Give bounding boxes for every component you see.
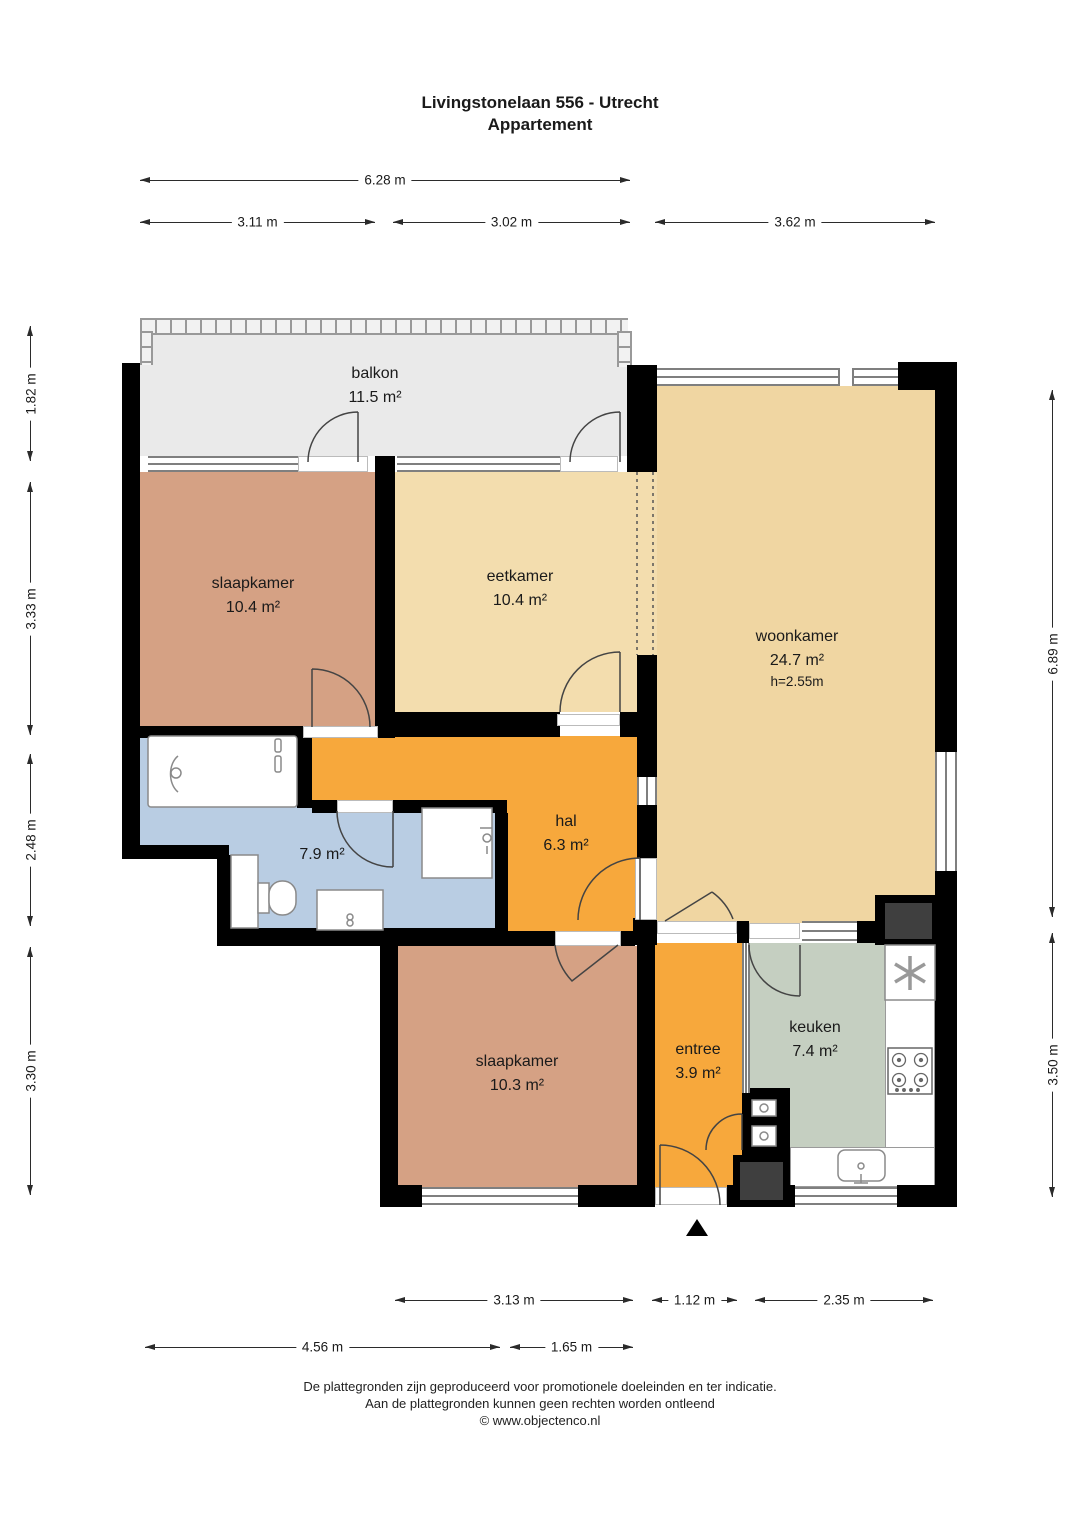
dim-top-total: 6.28 m: [140, 180, 630, 181]
door-sill-keuken: [749, 923, 800, 939]
dim-bottom-5: 1.65 m: [510, 1347, 633, 1348]
window-keuken-bottom: [795, 1187, 897, 1205]
room-label-eetkamer: eetkamer 10.4 m²: [487, 565, 554, 613]
window-slaapkamer2-bottom: [422, 1187, 578, 1205]
wall: [627, 365, 657, 472]
room-badkamer-tubzone: [140, 736, 297, 808]
room-height: h=2.55m: [756, 673, 839, 691]
door-sill-entree-woonkamer: [657, 921, 737, 934]
dim-label: 2.48 m: [24, 813, 39, 866]
room-area: 7.4 m²: [789, 1040, 841, 1064]
wall: [393, 800, 507, 813]
room-label-slaapkamer-1: slaapkamer 10.4 m²: [212, 572, 295, 620]
wall: [380, 943, 398, 1207]
wall: [122, 363, 140, 858]
footer-line-2: Aan de plattegronden kunnen geen rechten…: [0, 1395, 1080, 1412]
door-sill-eetkamer: [557, 714, 620, 726]
room-label-balkon: balkon 11.5 m²: [348, 362, 401, 410]
window-mullion: [838, 368, 854, 386]
door-sill-hal-woonkamer: [635, 858, 657, 920]
balcony-railing-left: [140, 331, 153, 365]
dim-label: 4.56 m: [296, 1340, 349, 1355]
dim-left-3: 2.48 m: [30, 754, 31, 926]
room-area: 10.4 m²: [487, 589, 554, 613]
dim-label: 3.50 m: [1046, 1038, 1061, 1091]
dim-label: 3.02 m: [485, 215, 538, 230]
room-name: slaapkamer: [476, 1050, 559, 1074]
dim-right-2: 3.50 m: [1052, 933, 1053, 1197]
wall: [578, 1185, 655, 1207]
dim-label: 3.33 m: [24, 582, 39, 635]
dim-label: 1.65 m: [545, 1340, 598, 1355]
dim-label: 2.35 m: [817, 1293, 870, 1308]
room-label-entree: entree 3.9 m²: [675, 1038, 720, 1086]
entrance-marker-icon: [686, 1219, 708, 1236]
dim-top-1: 3.11 m: [140, 222, 375, 223]
wall: [737, 921, 749, 943]
outside-cover: [122, 859, 229, 932]
room-hal-band: [312, 736, 637, 802]
dim-label: 6.89 m: [1046, 627, 1061, 680]
dim-bottom-4: 4.56 m: [145, 1347, 500, 1348]
wall: [375, 456, 395, 726]
dim-right-1: 6.89 m: [1052, 390, 1053, 917]
shaft-box-2: [740, 1162, 783, 1200]
window-woonkamer-top: [657, 368, 898, 386]
dim-left-1: 1.82 m: [30, 326, 31, 461]
room-area: 7.9 m²: [299, 843, 344, 867]
balcony-door-left-sill: [298, 456, 368, 472]
dim-label: 3.30 m: [24, 1044, 39, 1097]
dim-top-2: 3.02 m: [393, 222, 630, 223]
room-woonkamer-open-strip: [635, 470, 657, 657]
dim-bottom-1: 3.13 m: [395, 1300, 633, 1301]
door-sill-badkamer: [337, 800, 393, 813]
room-area: 10.4 m²: [212, 596, 295, 620]
footer-line-1: De plattegronden zijn geproduceerd voor …: [0, 1378, 1080, 1395]
room-area: 6.3 m²: [543, 834, 588, 858]
dim-label: 3.11 m: [231, 215, 283, 230]
wall: [935, 370, 957, 752]
dim-bottom-3: 2.35 m: [755, 1300, 933, 1301]
room-area: 24.7 m²: [756, 649, 839, 673]
wall-cupboard-frame: [742, 1088, 790, 1158]
wall: [897, 1185, 957, 1207]
window-balkon-slaapkamer: [148, 456, 298, 472]
wall: [393, 712, 560, 737]
page-title: Livingstonelaan 556 - Utrecht Appartemen…: [0, 92, 1080, 136]
room-keuken-lower: [790, 1095, 885, 1149]
dim-label: 3.62 m: [768, 215, 821, 230]
room-name: entree: [675, 1038, 720, 1062]
dim-bottom-2: 1.12 m: [652, 1300, 737, 1301]
room-name: hal: [543, 810, 588, 834]
balcony-door-right-sill: [560, 456, 618, 472]
wall: [633, 918, 657, 945]
window-woonkamer-left: [637, 777, 657, 805]
room-label-hal: hal 6.3 m²: [543, 810, 588, 858]
dim-left-4: 3.30 m: [30, 947, 31, 1195]
title-type: Appartement: [0, 114, 1080, 136]
room-label-slaapkamer-2: slaapkamer 10.3 m²: [476, 1050, 559, 1098]
balcony-railing-right: [617, 331, 632, 367]
room-area: 11.5 m²: [348, 386, 401, 410]
wall: [637, 805, 657, 860]
door-sill-slaapkamer2: [555, 931, 621, 946]
room-area: 10.3 m²: [476, 1074, 559, 1098]
wall: [297, 736, 312, 808]
wall: [503, 931, 557, 946]
kitchen-counter-bottom: [790, 1147, 935, 1187]
room-label-badkamer: 7.9 m²: [299, 843, 344, 867]
room-name: eetkamer: [487, 565, 554, 589]
room-name: keuken: [789, 1016, 841, 1040]
shaft-box: [885, 903, 932, 939]
window-entree-keuken: [742, 943, 750, 1093]
dim-label: 1.82 m: [24, 367, 39, 420]
wall: [935, 871, 957, 1207]
wall: [217, 855, 231, 930]
title-address: Livingstonelaan 556 - Utrecht: [0, 92, 1080, 114]
wall: [140, 726, 303, 738]
room-name: balkon: [348, 362, 401, 386]
dim-top-3: 3.62 m: [655, 222, 935, 223]
room-label-woonkamer: woonkamer 24.7 m² h=2.55m: [756, 625, 839, 691]
dim-label: 6.28 m: [358, 173, 411, 188]
wall: [637, 655, 657, 777]
floorplan-page: Livingstonelaan 556 - Utrecht Appartemen…: [0, 0, 1080, 1527]
dim-label: 3.13 m: [487, 1293, 540, 1308]
dim-left-2: 3.33 m: [30, 482, 31, 735]
balcony-railing-top: [140, 318, 628, 335]
wall: [495, 813, 508, 933]
door-sill-frontdoor: [655, 1187, 727, 1205]
window-woonkamer-bottom: [802, 921, 857, 941]
footer-line-3: © www.objectenco.nl: [0, 1412, 1080, 1429]
wall: [312, 800, 337, 813]
dim-label: 1.12 m: [668, 1293, 721, 1308]
room-name: woonkamer: [756, 625, 839, 649]
window-woonkamer-right: [935, 752, 957, 871]
wall: [122, 845, 229, 859]
wall: [637, 943, 655, 1189]
footer-disclaimer: De plattegronden zijn geproduceerd voor …: [0, 1378, 1080, 1429]
window-balkon-eetkamer: [397, 456, 560, 472]
room-name: slaapkamer: [212, 572, 295, 596]
door-sill-slaapkamer1: [303, 726, 378, 738]
room-label-keuken: keuken 7.4 m²: [789, 1016, 841, 1064]
room-area: 3.9 m²: [675, 1062, 720, 1086]
wall: [217, 928, 503, 946]
